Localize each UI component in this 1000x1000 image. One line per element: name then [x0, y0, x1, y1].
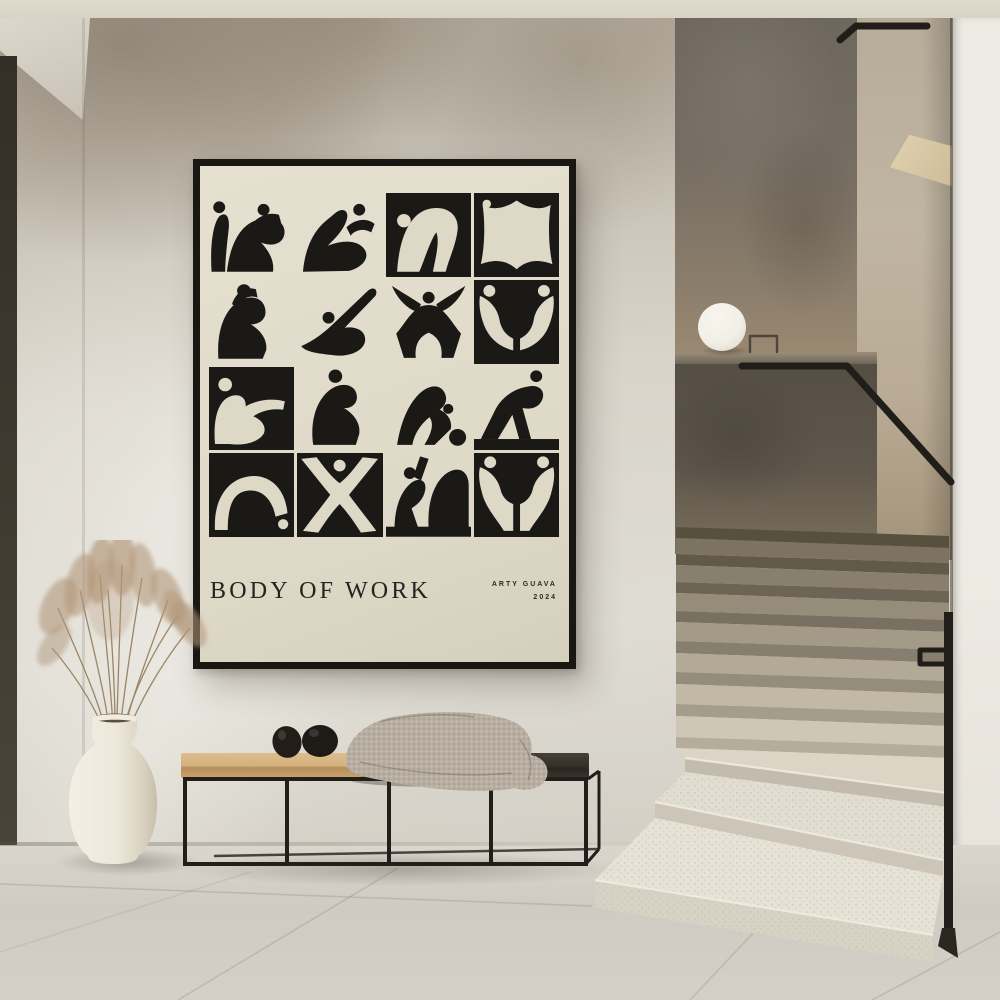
poster-credit: ARTY GUAVA 2024 [492, 578, 557, 605]
poster-tile-r2c1 [209, 280, 294, 364]
staircase [580, 0, 1000, 1000]
cushion [346, 712, 548, 791]
poster-tile-r2c4 [474, 280, 559, 364]
poster-year: 2024 [492, 591, 557, 604]
poster-artwork-grid [209, 193, 559, 537]
poster-tile-r2c3 [386, 280, 471, 364]
lower-steps [595, 758, 947, 962]
poster-tile-r4c2 [297, 453, 382, 537]
upper-handrail [840, 26, 927, 40]
lamp-stand [750, 336, 777, 352]
upper-steps [676, 527, 949, 793]
framed-poster: BODY OF WORK ARTY GUAVA 2024 [193, 159, 576, 669]
poster-title: BODY OF WORK [210, 578, 431, 605]
bench-details [170, 700, 620, 900]
poster-tile-r4c4 [474, 453, 559, 537]
poster-tile-r1c4 [474, 193, 559, 277]
handrail-post-base [938, 928, 958, 958]
vase [69, 714, 157, 865]
poster-tile-r1c3 [386, 193, 471, 277]
poster-tile-r1c2 [297, 193, 382, 277]
poster-tile-r3c2 [297, 367, 382, 451]
poster-tile-r4c3 [386, 453, 471, 537]
hallway-scene: BODY OF WORK ARTY GUAVA 2024 [0, 0, 1000, 1000]
poster-artist: ARTY GUAVA [492, 578, 557, 591]
poster-caption: BODY OF WORK ARTY GUAVA 2024 [210, 578, 557, 605]
poster-tile-r3c1 [209, 367, 294, 451]
poster-tile-r4c1 [209, 453, 294, 537]
left-wall-edge [0, 56, 17, 846]
handrail-post [944, 612, 953, 934]
poster-tile-r2c2 [297, 280, 382, 364]
decorative-stones [269, 723, 338, 761]
poster-tile-r3c4 [474, 367, 559, 451]
poster-tile-r3c3 [386, 367, 471, 451]
mid-handrail [742, 366, 951, 482]
poster-tile-r1c1 [209, 193, 294, 277]
